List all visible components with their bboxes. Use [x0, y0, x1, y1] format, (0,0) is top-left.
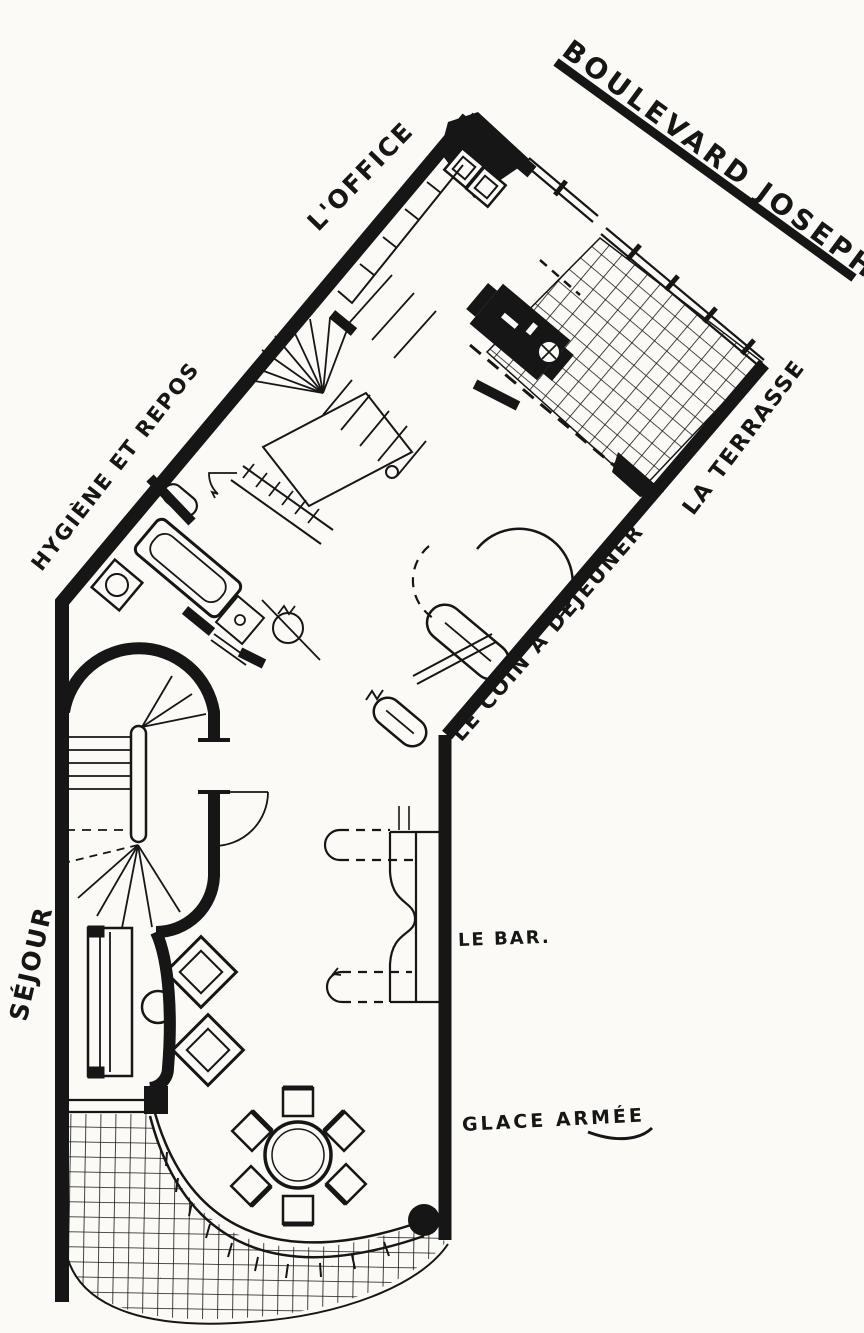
terrace-lower-hatch: [64, 1114, 446, 1319]
bathroom: [92, 473, 320, 665]
kitchen-office: [338, 112, 530, 303]
bar-counter: [325, 806, 444, 1002]
glass-note-underline: [588, 1128, 652, 1139]
floor-plan-page: BOULEVARD JOSEPH II L'OFFICE HYGIÈNE ET …: [0, 0, 864, 1333]
annotation-bar: LE BAR.: [458, 927, 551, 951]
column: [408, 1204, 440, 1236]
floor-plan-drawing: [0, 0, 864, 1333]
